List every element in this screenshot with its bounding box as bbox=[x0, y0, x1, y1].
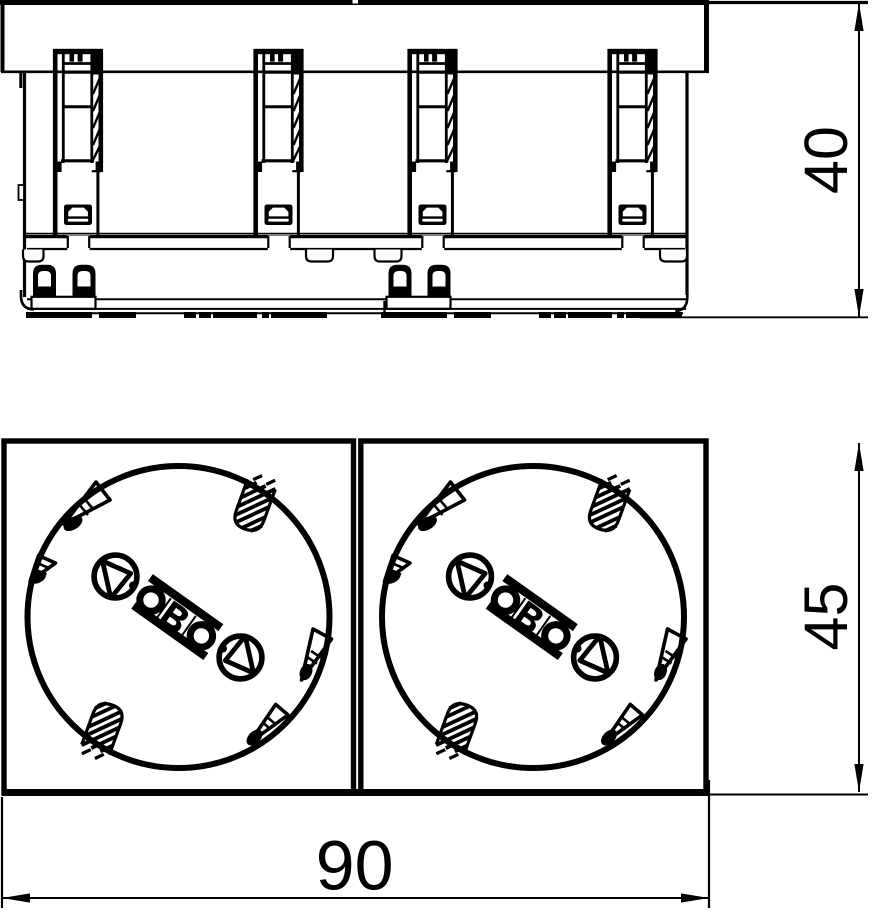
svg-text:90: 90 bbox=[316, 827, 394, 905]
svg-text:45: 45 bbox=[792, 583, 860, 651]
svg-text:40: 40 bbox=[792, 126, 860, 194]
